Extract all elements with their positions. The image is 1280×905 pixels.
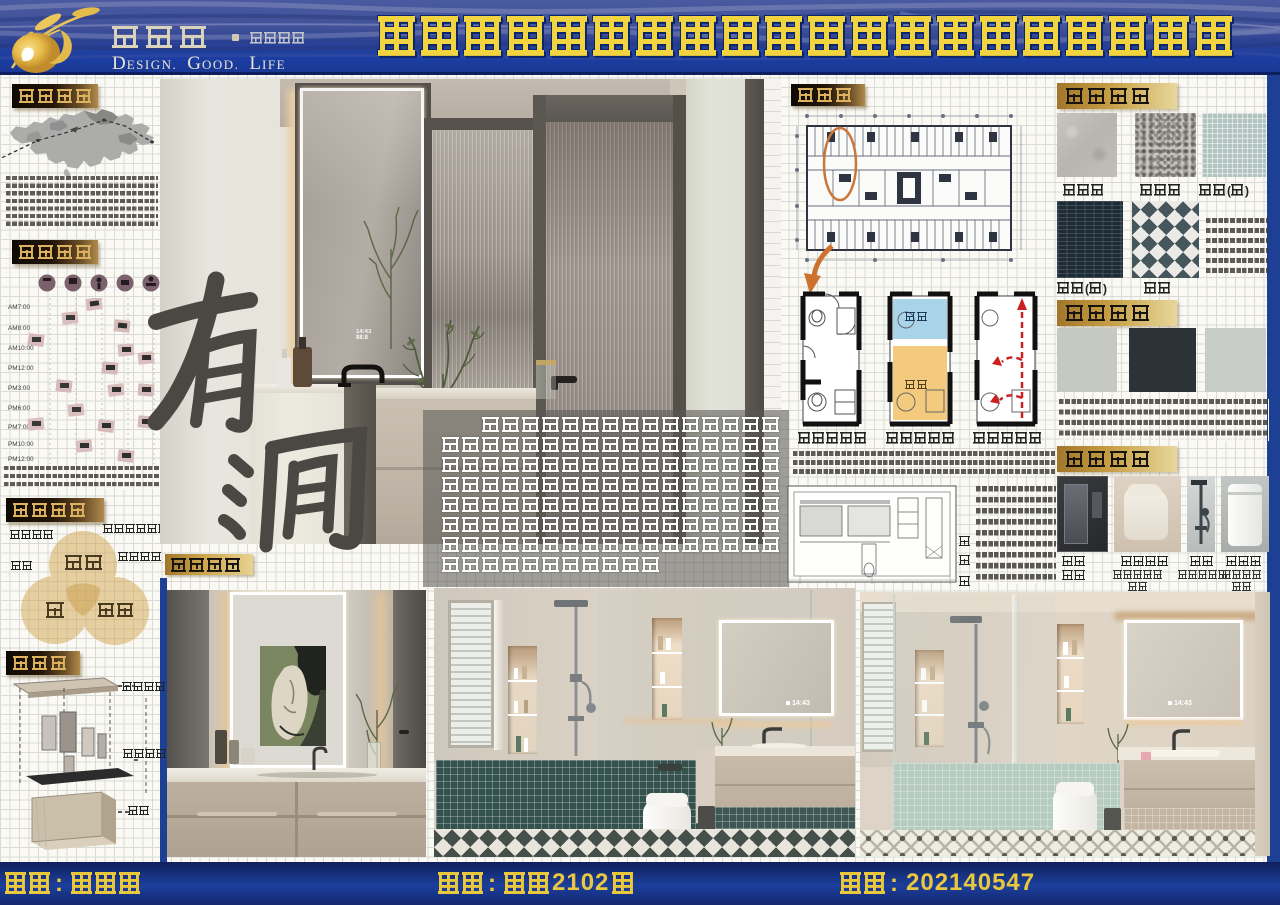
svg-text:PM6:00: PM6:00 [8, 405, 30, 412]
svg-text:PM3:00: PM3:00 [8, 385, 30, 392]
svg-text:AM10:00: AM10:00 [8, 345, 34, 352]
svg-text:PM12:00: PM12:00 [8, 456, 34, 463]
svg-text:PM10:00: PM10:00 [8, 441, 34, 448]
svg-text:PM7:00: PM7:00 [8, 424, 30, 431]
svg-text:PM12:00: PM12:00 [8, 365, 34, 372]
svg-text:AM8:00: AM8:00 [8, 325, 30, 332]
svg-text:AM7:00: AM7:00 [8, 304, 30, 311]
